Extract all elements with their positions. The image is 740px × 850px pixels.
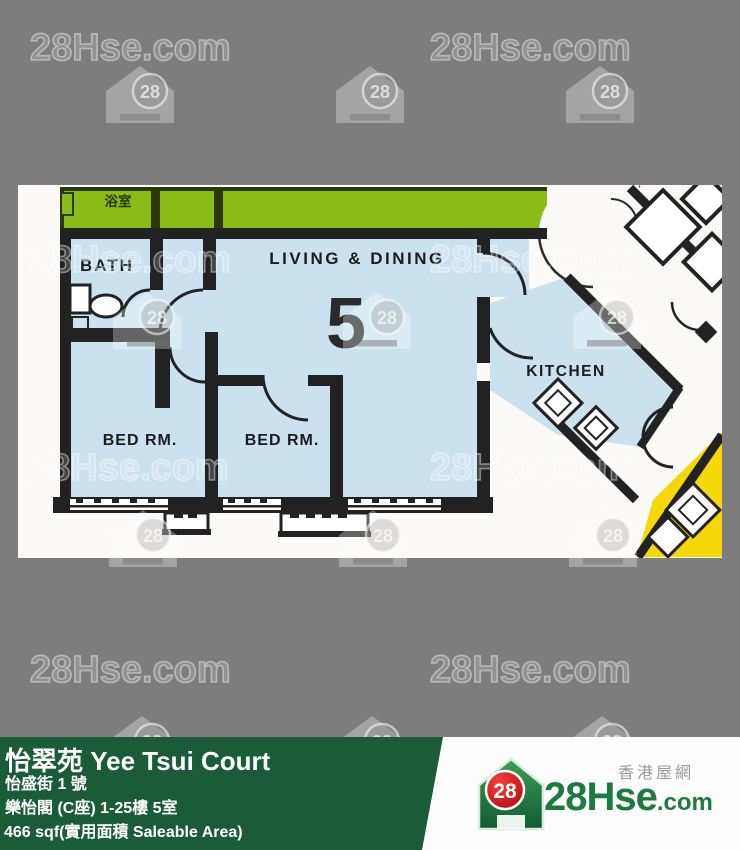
green-divider [151, 187, 160, 232]
estate-block-unit: 樂怡閣 (C座) 1-25樓 5室 [5, 794, 177, 818]
watermark-house-icon: 28 [563, 64, 637, 126]
watermark-text: 28Hse.com [30, 28, 231, 68]
page: 浴室 BATH LIVING & DINING 5 KITCHEN BED RM… [0, 0, 740, 850]
green-border [60, 187, 577, 191]
label-unit-number: 5 [326, 284, 366, 364]
label-kitchen: KITCHEN [526, 363, 605, 380]
windows [70, 499, 441, 510]
label-bathroom-cjk: 浴室 [105, 193, 132, 209]
brand-badge: 28 [493, 780, 517, 803]
label-bath: BATH [80, 256, 134, 275]
footer-brand-panel: 香港屋網 28 28Hse.com [422, 737, 740, 850]
wall-window-block [61, 193, 73, 215]
estate-address: 怡盛街 1 號 [5, 770, 87, 794]
brand-house-icon: 28 [477, 757, 545, 831]
footer: 怡翠苑 Yee Tsui Court 怡盛街 1 號 樂怡閣 (C座) 1-25… [0, 737, 740, 850]
brand-name-main: 28Hse [544, 775, 657, 819]
estate-area: 466 sqf(實用面積 Saleable Area) [4, 818, 243, 842]
brand-name-suffix: .com [657, 789, 713, 816]
label-bedroom2: BED RM. [245, 432, 320, 449]
common-area-green-strip [60, 187, 577, 233]
label-bedroom1: BED RM. [103, 432, 178, 449]
floorplan: 浴室 BATH LIVING & DINING 5 KITCHEN BED RM… [18, 185, 722, 558]
watermark-text: 28Hse.com [430, 650, 631, 690]
lobby-area [547, 185, 639, 211]
label-living-dining: LIVING & DINING [269, 249, 444, 268]
watermark-text: 28Hse.com [30, 650, 231, 690]
green-divider [214, 187, 223, 232]
watermark-house-icon: 28 [333, 64, 407, 126]
brand-wordmark: 28Hse.com [544, 775, 713, 820]
svg-text:28: 28 [600, 82, 620, 102]
svg-text:28: 28 [140, 82, 160, 102]
svg-text:28: 28 [370, 82, 390, 102]
watermark-house-icon: 28 [103, 64, 177, 126]
watermark-text: 28Hse.com [430, 28, 631, 68]
